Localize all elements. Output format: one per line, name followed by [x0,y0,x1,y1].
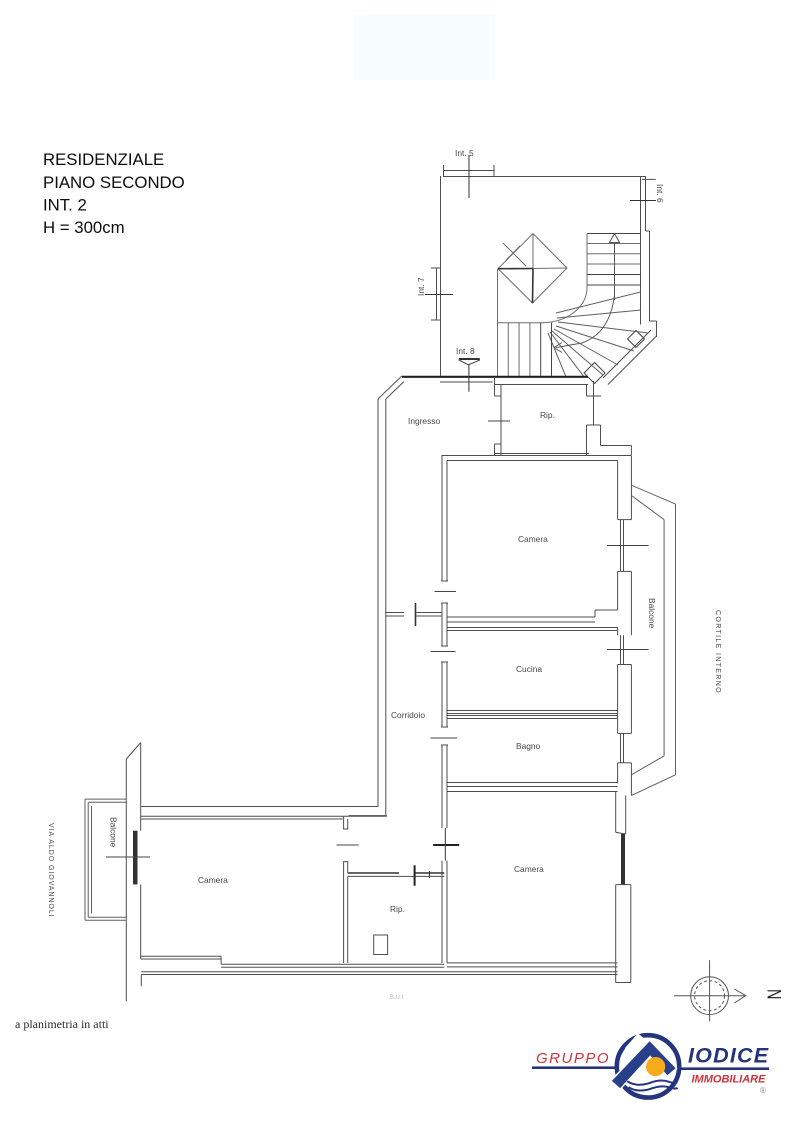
svg-text:PIANO SECONDO: PIANO SECONDO [43,173,185,192]
svg-text:Camera: Camera [198,875,228,885]
svg-text:RESIDENZIALE: RESIDENZIALE [43,150,164,169]
svg-text:Ingresso: Ingresso [408,416,440,426]
svg-text:Int. 5: Int. 5 [455,148,474,158]
svg-text:Rip.: Rip. [540,410,555,420]
svg-text:Camera: Camera [518,534,548,544]
svg-text:CORTILE INTERNO: CORTILE INTERNO [714,610,721,694]
svg-text:INT. 2: INT. 2 [43,196,87,215]
svg-text:VIA ALDO GIOVANNOLI: VIA ALDO GIOVANNOLI [47,823,54,918]
svg-text:Rip.: Rip. [390,904,405,914]
svg-text:a planimetria in atti: a planimetria in atti [15,1017,109,1031]
svg-text:Corridoio: Corridoio [391,710,425,720]
svg-text:Balcone: Balcone [647,598,657,629]
svg-text:H = 300cm: H = 300cm [43,218,125,237]
svg-text:Balcone: Balcone [109,817,119,848]
svg-text:®: ® [760,1086,766,1095]
svg-text:Int. 7: Int. 7 [416,277,426,296]
svg-text:B.U.I: B.U.I [390,995,404,1001]
svg-text:Int. 8: Int. 8 [456,346,475,356]
svg-text:Cucina: Cucina [516,664,542,674]
svg-text:GRUPPO: GRUPPO [536,1050,610,1067]
svg-text:N: N [763,989,785,1000]
svg-text:Camera: Camera [514,864,544,874]
svg-text:Bagno: Bagno [516,741,541,751]
svg-text:IODICE: IODICE [688,1044,769,1068]
svg-text:Int. 6: Int. 6 [655,184,665,203]
svg-text:IMMOBILIARE: IMMOBILIARE [692,1074,767,1086]
